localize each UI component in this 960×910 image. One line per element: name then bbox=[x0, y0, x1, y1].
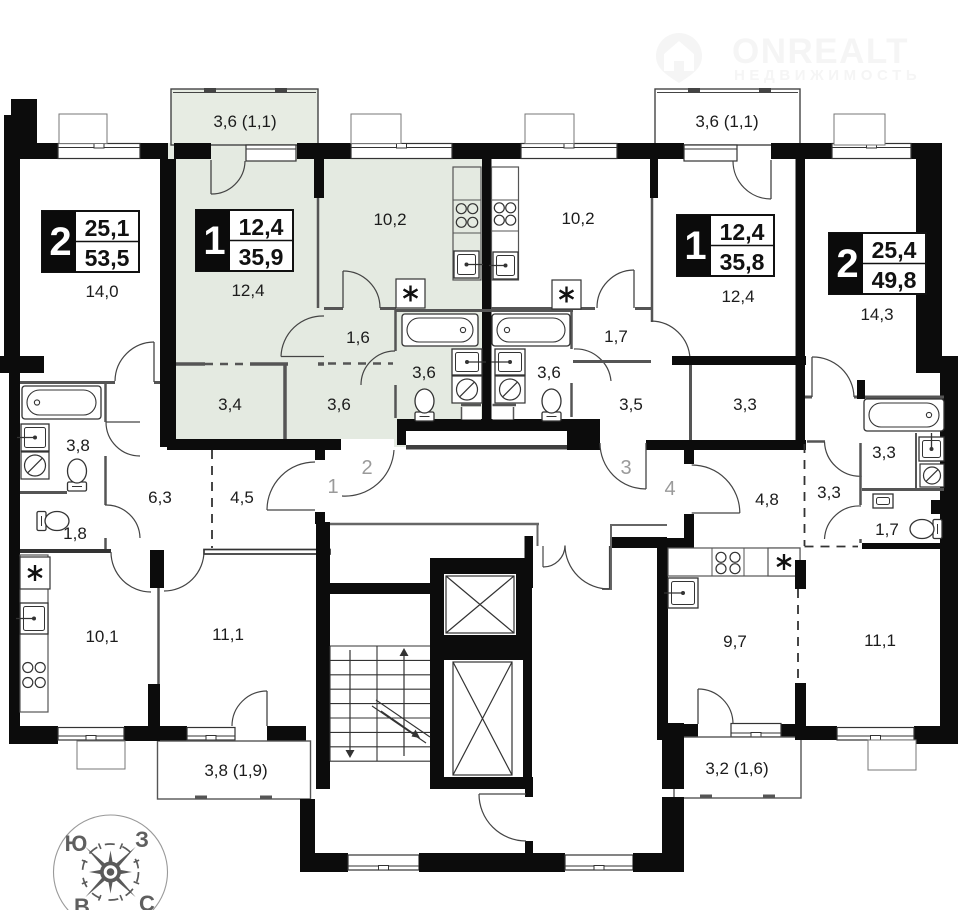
svg-text:4: 4 bbox=[664, 478, 675, 500]
svg-text:1: 1 bbox=[684, 224, 706, 268]
svg-text:3,6 (1,1): 3,6 (1,1) bbox=[213, 112, 276, 131]
svg-text:3,8: 3,8 bbox=[66, 436, 90, 455]
svg-text:4,5: 4,5 bbox=[230, 488, 254, 507]
svg-text:1,6: 1,6 bbox=[346, 328, 370, 347]
svg-text:10,1: 10,1 bbox=[85, 627, 118, 646]
svg-text:3,3: 3,3 bbox=[817, 483, 841, 502]
svg-text:Ю: Ю bbox=[65, 831, 88, 856]
svg-text:12,4: 12,4 bbox=[721, 287, 754, 306]
svg-text:10,2: 10,2 bbox=[373, 210, 406, 229]
svg-text:12,4: 12,4 bbox=[231, 281, 264, 300]
svg-text:НЕДВИЖИМОСТЬ: НЕДВИЖИМОСТЬ bbox=[734, 67, 921, 84]
svg-text:1,8: 1,8 bbox=[63, 524, 87, 543]
svg-text:2: 2 bbox=[836, 242, 858, 286]
svg-text:14,3: 14,3 bbox=[860, 305, 893, 324]
svg-text:11,1: 11,1 bbox=[212, 625, 244, 644]
svg-text:3,2 (1,6): 3,2 (1,6) bbox=[705, 759, 768, 778]
svg-text:35,8: 35,8 bbox=[720, 249, 765, 275]
svg-text:2: 2 bbox=[361, 457, 372, 479]
svg-text:3,4: 3,4 bbox=[218, 395, 242, 414]
svg-text:4,8: 4,8 bbox=[755, 490, 779, 509]
svg-text:1,7: 1,7 bbox=[604, 327, 628, 346]
svg-text:1: 1 bbox=[327, 476, 338, 498]
svg-text:1: 1 bbox=[203, 219, 225, 263]
svg-text:ONREALT: ONREALT bbox=[732, 32, 909, 71]
svg-text:2: 2 bbox=[49, 220, 71, 264]
svg-text:3,6 (1,1): 3,6 (1,1) bbox=[695, 112, 758, 131]
svg-text:53,5: 53,5 bbox=[85, 245, 130, 271]
svg-text:3,6: 3,6 bbox=[412, 363, 436, 382]
svg-text:25,4: 25,4 bbox=[872, 237, 917, 263]
svg-text:3,5: 3,5 bbox=[619, 395, 643, 414]
svg-text:3: 3 bbox=[620, 457, 631, 479]
svg-text:14,0: 14,0 bbox=[85, 282, 118, 301]
svg-text:35,9: 35,9 bbox=[239, 244, 284, 270]
svg-text:3,3: 3,3 bbox=[872, 443, 896, 462]
svg-text:12,4: 12,4 bbox=[720, 219, 765, 245]
svg-text:3,6: 3,6 bbox=[327, 395, 351, 414]
svg-text:3,6: 3,6 bbox=[537, 363, 561, 382]
svg-text:С: С bbox=[139, 891, 155, 910]
svg-text:12,4: 12,4 bbox=[239, 214, 284, 240]
svg-text:1,7: 1,7 bbox=[875, 520, 899, 539]
svg-text:3,8 (1,9): 3,8 (1,9) bbox=[204, 761, 267, 780]
svg-text:11,1: 11,1 bbox=[864, 631, 896, 650]
svg-text:З: З bbox=[135, 827, 149, 852]
svg-text:9,7: 9,7 bbox=[723, 632, 747, 651]
svg-text:49,8: 49,8 bbox=[872, 267, 917, 293]
svg-text:3,3: 3,3 bbox=[733, 395, 757, 414]
svg-text:6,3: 6,3 bbox=[148, 488, 172, 507]
svg-text:10,2: 10,2 bbox=[561, 209, 594, 228]
svg-text:25,1: 25,1 bbox=[85, 215, 130, 241]
svg-text:В: В bbox=[74, 894, 90, 910]
